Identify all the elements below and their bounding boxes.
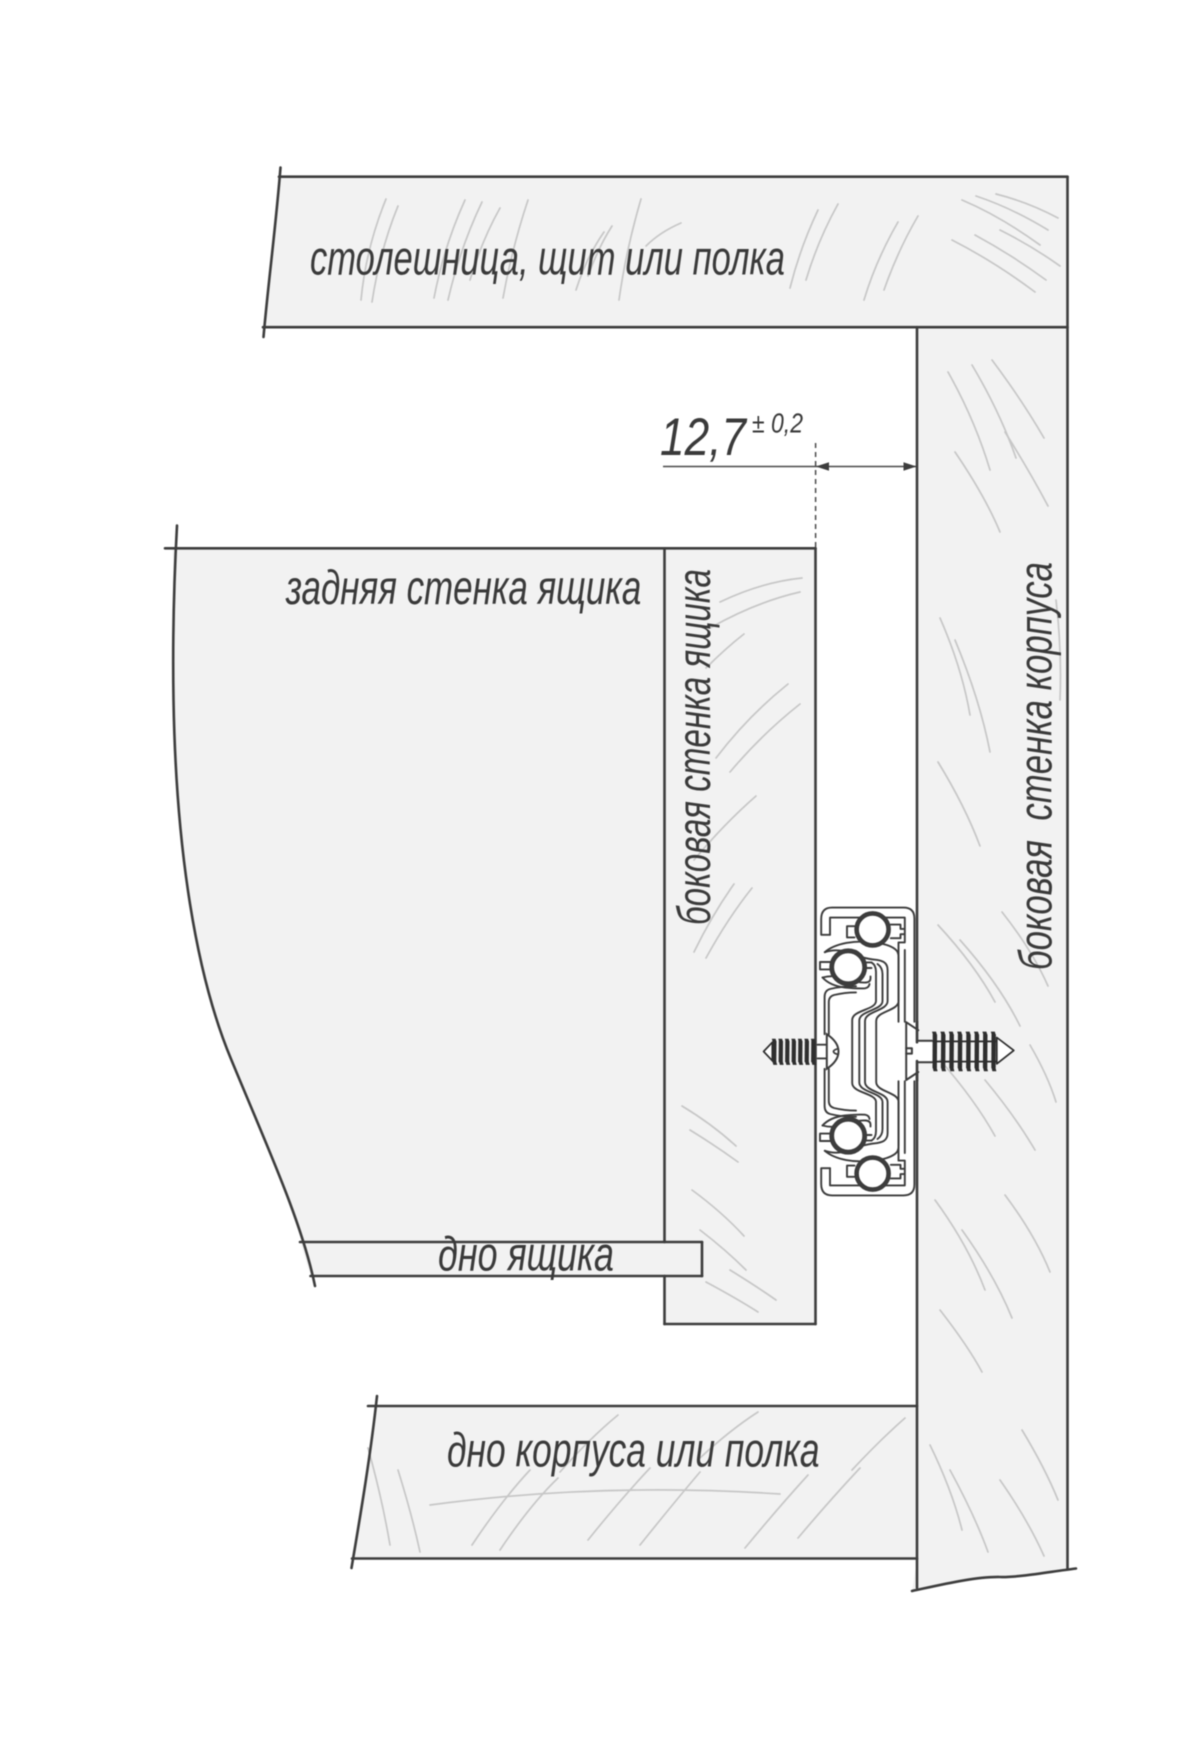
- svg-text:задняя стенка ящика: задняя стенка ящика: [285, 562, 641, 615]
- svg-text:боковая стенка ящика: боковая стенка ящика: [668, 569, 720, 925]
- svg-text:± 0,2: ± 0,2: [752, 408, 803, 439]
- svg-text:дно корпуса или полка: дно корпуса или полка: [447, 1425, 820, 1478]
- svg-text:столешница, щит или полка: столешница, щит или полка: [310, 233, 785, 286]
- svg-text:12,7: 12,7: [660, 408, 748, 467]
- svg-text:дно ящика: дно ящика: [438, 1229, 614, 1282]
- svg-text:боковая стенка корпуса: боковая стенка корпуса: [1010, 562, 1062, 970]
